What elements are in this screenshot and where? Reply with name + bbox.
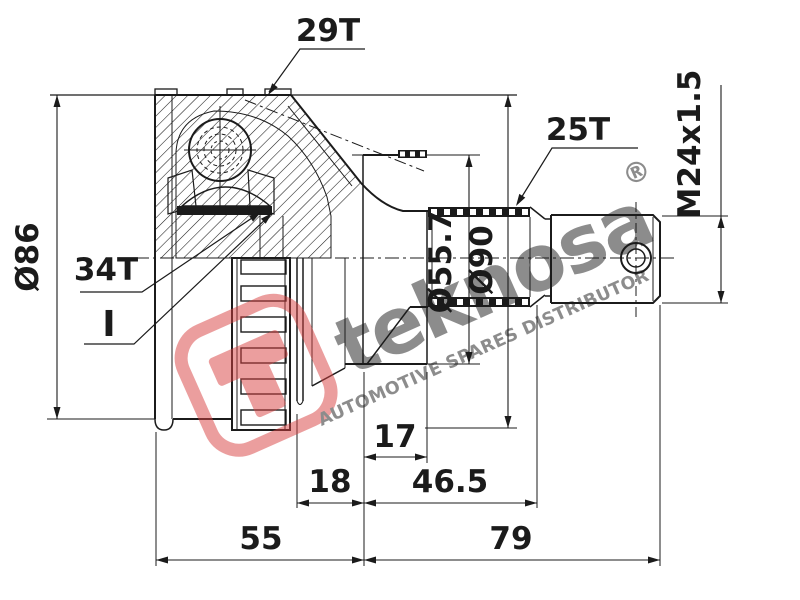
groove-length-label: 18 (308, 464, 351, 500)
cv-joint-drawing-page: Ø86 Ø55.7 Ø90 M24x1.5 17 (0, 0, 800, 600)
outer-teeth-label: 29T (296, 13, 360, 49)
stub-length-label: 79 (489, 521, 532, 557)
seat-length-label: 17 (373, 419, 416, 455)
shaft-teeth-label: 25T (546, 112, 610, 148)
shaft-length-label: 46.5 (412, 464, 489, 500)
thread-spec-label: M24x1.5 (672, 70, 708, 219)
cv-joint-technical-drawing: Ø86 Ø55.7 Ø90 M24x1.5 17 (0, 0, 800, 600)
detail-marker-label: I (102, 304, 115, 345)
inner-teeth-label: 34T (74, 252, 138, 288)
housing-length-label: 55 (239, 521, 282, 557)
housing-dia-label: Ø86 (10, 222, 46, 292)
